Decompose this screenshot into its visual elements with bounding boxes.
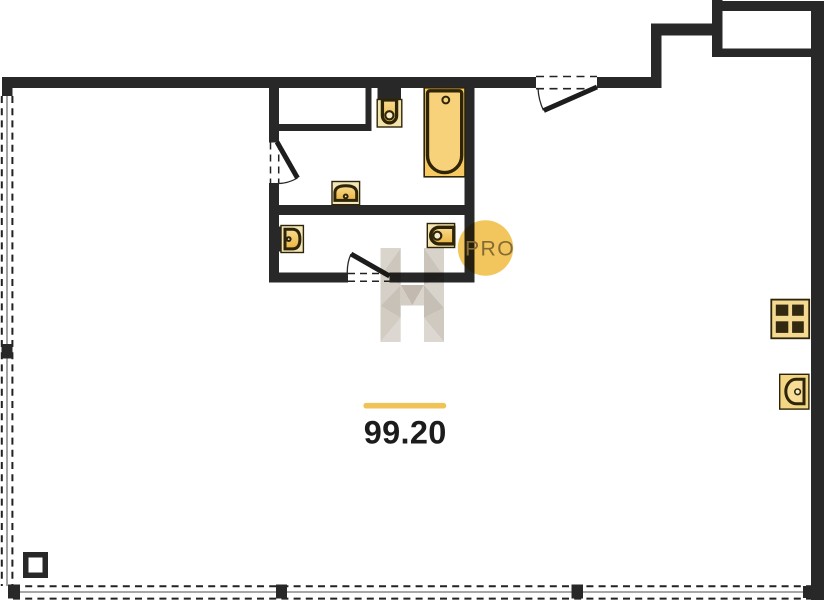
svg-text:99.20: 99.20 (364, 415, 447, 451)
